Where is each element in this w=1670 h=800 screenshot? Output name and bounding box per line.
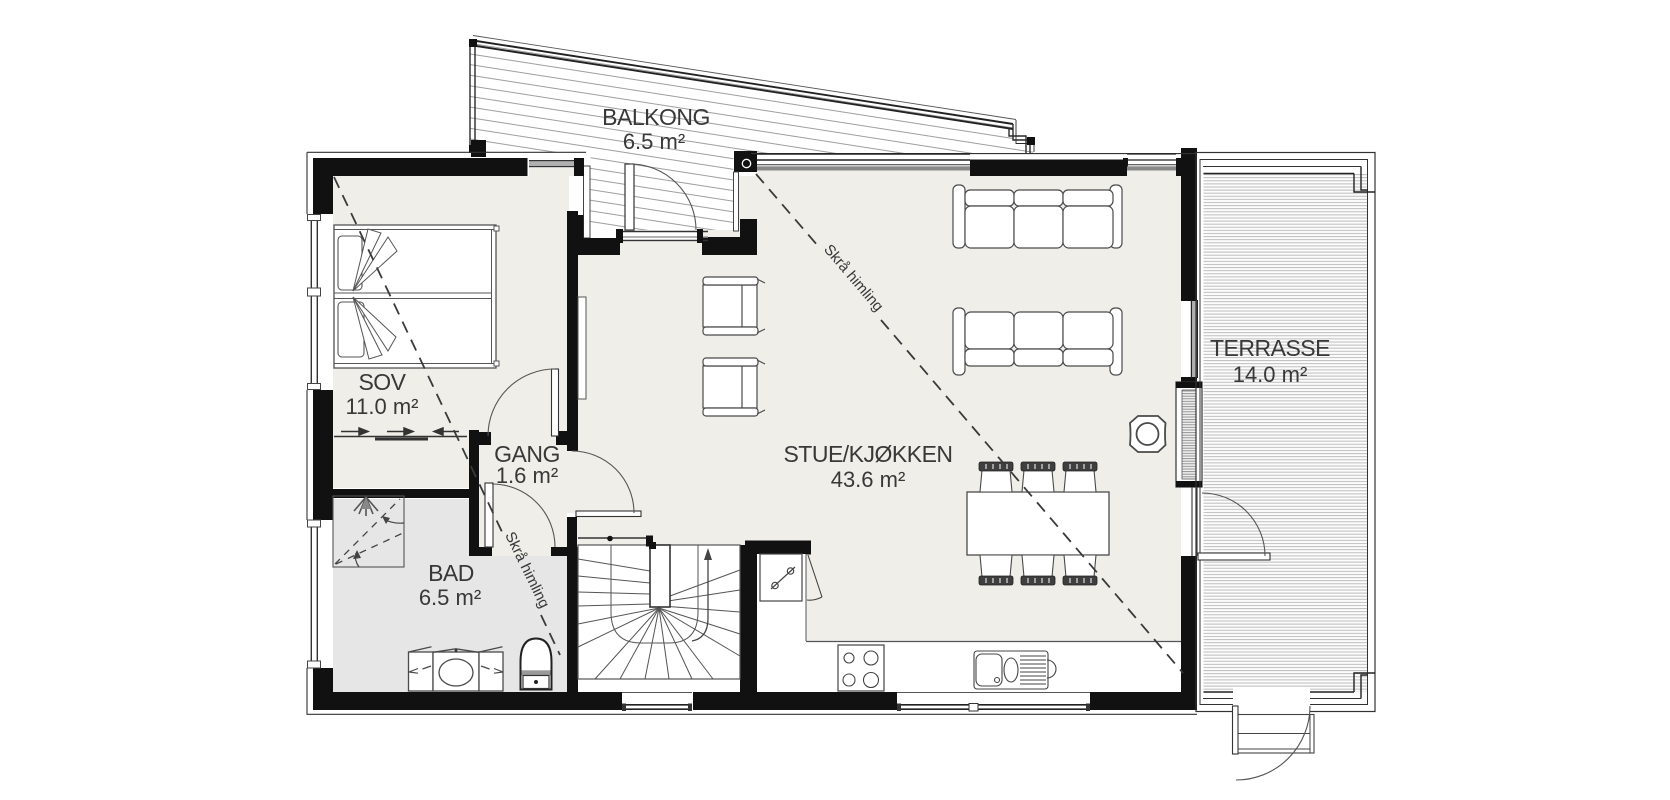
svg-text:1.6 m²: 1.6 m² bbox=[496, 463, 558, 488]
svg-text:6.5 m²: 6.5 m² bbox=[623, 129, 685, 154]
svg-text:STUE/KJØKKEN: STUE/KJØKKEN bbox=[783, 441, 952, 467]
svg-text:TERRASSE: TERRASSE bbox=[1210, 335, 1330, 361]
svg-text:BALKONG: BALKONG bbox=[602, 104, 710, 130]
svg-text:6.5 m²: 6.5 m² bbox=[419, 585, 481, 610]
svg-text:43.6 m²: 43.6 m² bbox=[831, 467, 906, 492]
svg-text:14.0 m²: 14.0 m² bbox=[1233, 362, 1308, 387]
svg-text:BAD: BAD bbox=[428, 560, 474, 586]
svg-text:11.0 m²: 11.0 m² bbox=[346, 394, 419, 419]
svg-text:SOV: SOV bbox=[358, 369, 406, 395]
